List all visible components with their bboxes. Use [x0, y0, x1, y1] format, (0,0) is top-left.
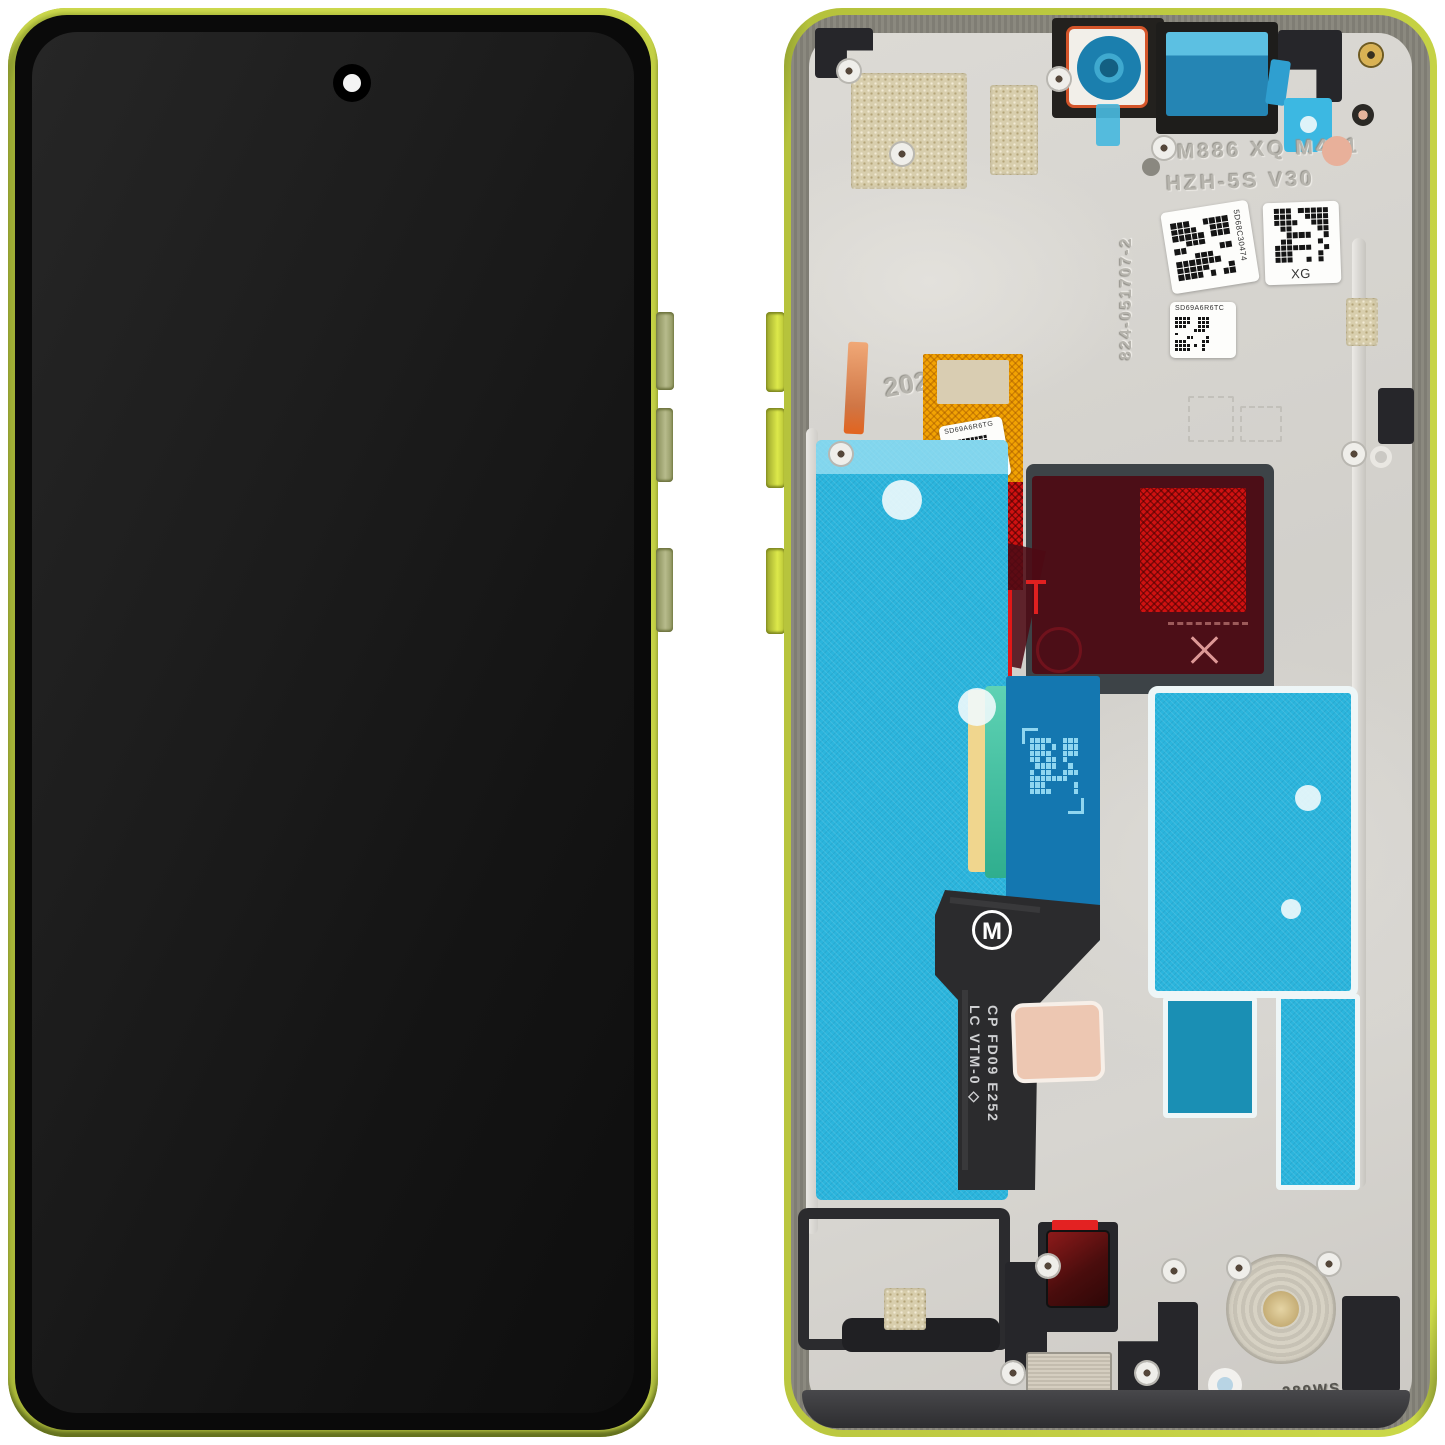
front-side-button-stub-1: [656, 312, 674, 390]
pull-tab-hole: [1300, 116, 1317, 133]
screw: [1228, 1257, 1250, 1279]
motorola-logo: M: [972, 910, 1012, 950]
adhesive-window-teal: [1163, 996, 1257, 1118]
front-camera-lens-cover: [1077, 36, 1141, 100]
flex-marking-text: CP FD09 E252 LC VTM-0 ◇: [966, 1005, 1002, 1123]
screw: [1153, 137, 1175, 159]
screw: [1136, 1362, 1158, 1384]
copper-contact-dot: [1322, 136, 1352, 166]
qr-sticker-2-code: XG: [1291, 266, 1311, 282]
flex-marking-line2: LC VTM-0 ◇: [966, 1005, 984, 1123]
screw: [1163, 1260, 1185, 1282]
earpiece-adhesive-pad: [1166, 32, 1268, 116]
camera-protective-tab: [1096, 104, 1120, 146]
screw: [1037, 1255, 1059, 1277]
screw: [838, 60, 860, 82]
phone-back-view: SM886 XQ M441 HZH-5S V30 5D68C30474 XG S…: [784, 8, 1437, 1437]
film-t-mark: [1026, 580, 1046, 614]
qr-code-icon: [1175, 317, 1209, 351]
antenna-mesh-large: [851, 73, 967, 189]
sensor-hole: [1352, 104, 1374, 126]
film-dash-marks: [1168, 622, 1248, 625]
screw: [1002, 1362, 1024, 1384]
qr-sticker-1: 5D68C30474: [1160, 200, 1260, 295]
screw-hole: [1370, 446, 1392, 468]
front-camera-module: [1066, 26, 1148, 108]
red-adhesive-patch: [1140, 488, 1246, 612]
film-x-mark: [1186, 632, 1222, 668]
flex-stiffener-label: [937, 360, 1009, 404]
phone-front-view: [8, 8, 658, 1437]
screw: [830, 443, 852, 465]
screw: [1343, 443, 1365, 465]
film-circle-mark: [1036, 627, 1082, 673]
qr-sticker-3: SD69A6R6TC: [1170, 302, 1236, 358]
sheet-hole: [1281, 899, 1301, 919]
qr-sticker-2: XG: [1263, 201, 1342, 286]
bottom-inner-bezel: [802, 1390, 1410, 1428]
sheet-hole: [1295, 785, 1321, 811]
screw: [891, 143, 913, 165]
etched-square-2: [1240, 406, 1282, 442]
back-side-button-stub-3: [766, 548, 785, 634]
etched-square-1: [1188, 396, 1234, 442]
mesh-patch-bottom-left: [884, 1288, 926, 1330]
product-photo: SM886 XQ M441 HZH-5S V30 5D68C30474 XG S…: [0, 0, 1445, 1445]
adhesive-sheet-right: [1148, 686, 1358, 998]
engraved-part-number: 824-051707-2: [1118, 236, 1136, 360]
screw: [1048, 68, 1070, 90]
qr-sticker-1-code: 5D68C30474: [1232, 209, 1249, 262]
plate-hole: [1142, 158, 1160, 176]
etched-qr-code-icon: [1030, 738, 1078, 794]
front-camera-lens-icon: [343, 74, 361, 92]
back-side-button-stub-2: [766, 408, 785, 488]
screw-gold: [1360, 44, 1382, 66]
front-side-button-stub-2: [656, 408, 673, 482]
antenna-mesh-small: [990, 85, 1038, 175]
sheet-hole: [882, 480, 922, 520]
antenna-mesh-right: [1346, 298, 1378, 346]
back-side-button-stub-1: [766, 312, 785, 392]
front-bezel: [15, 15, 651, 1430]
screen: [32, 32, 634, 1413]
bottom-right-bracket: [1342, 1296, 1400, 1392]
screw: [1318, 1253, 1340, 1275]
front-side-button-stub-3: [656, 548, 673, 632]
pink-foam-pad: [1011, 1000, 1106, 1083]
qr-code-icon: [1170, 215, 1236, 281]
front-camera-punch-hole: [333, 64, 371, 102]
speaker-dome: [1263, 1291, 1299, 1327]
qr-code-icon: [1274, 207, 1330, 263]
right-edge-bracket: [1378, 388, 1414, 444]
adhesive-column-right: [1276, 994, 1360, 1190]
sheet-hole: [958, 688, 996, 726]
qr-sticker-3-code: SD69A6R6TC: [1175, 305, 1224, 312]
flex-marking-line1: CP FD09 E252: [984, 1005, 1002, 1123]
